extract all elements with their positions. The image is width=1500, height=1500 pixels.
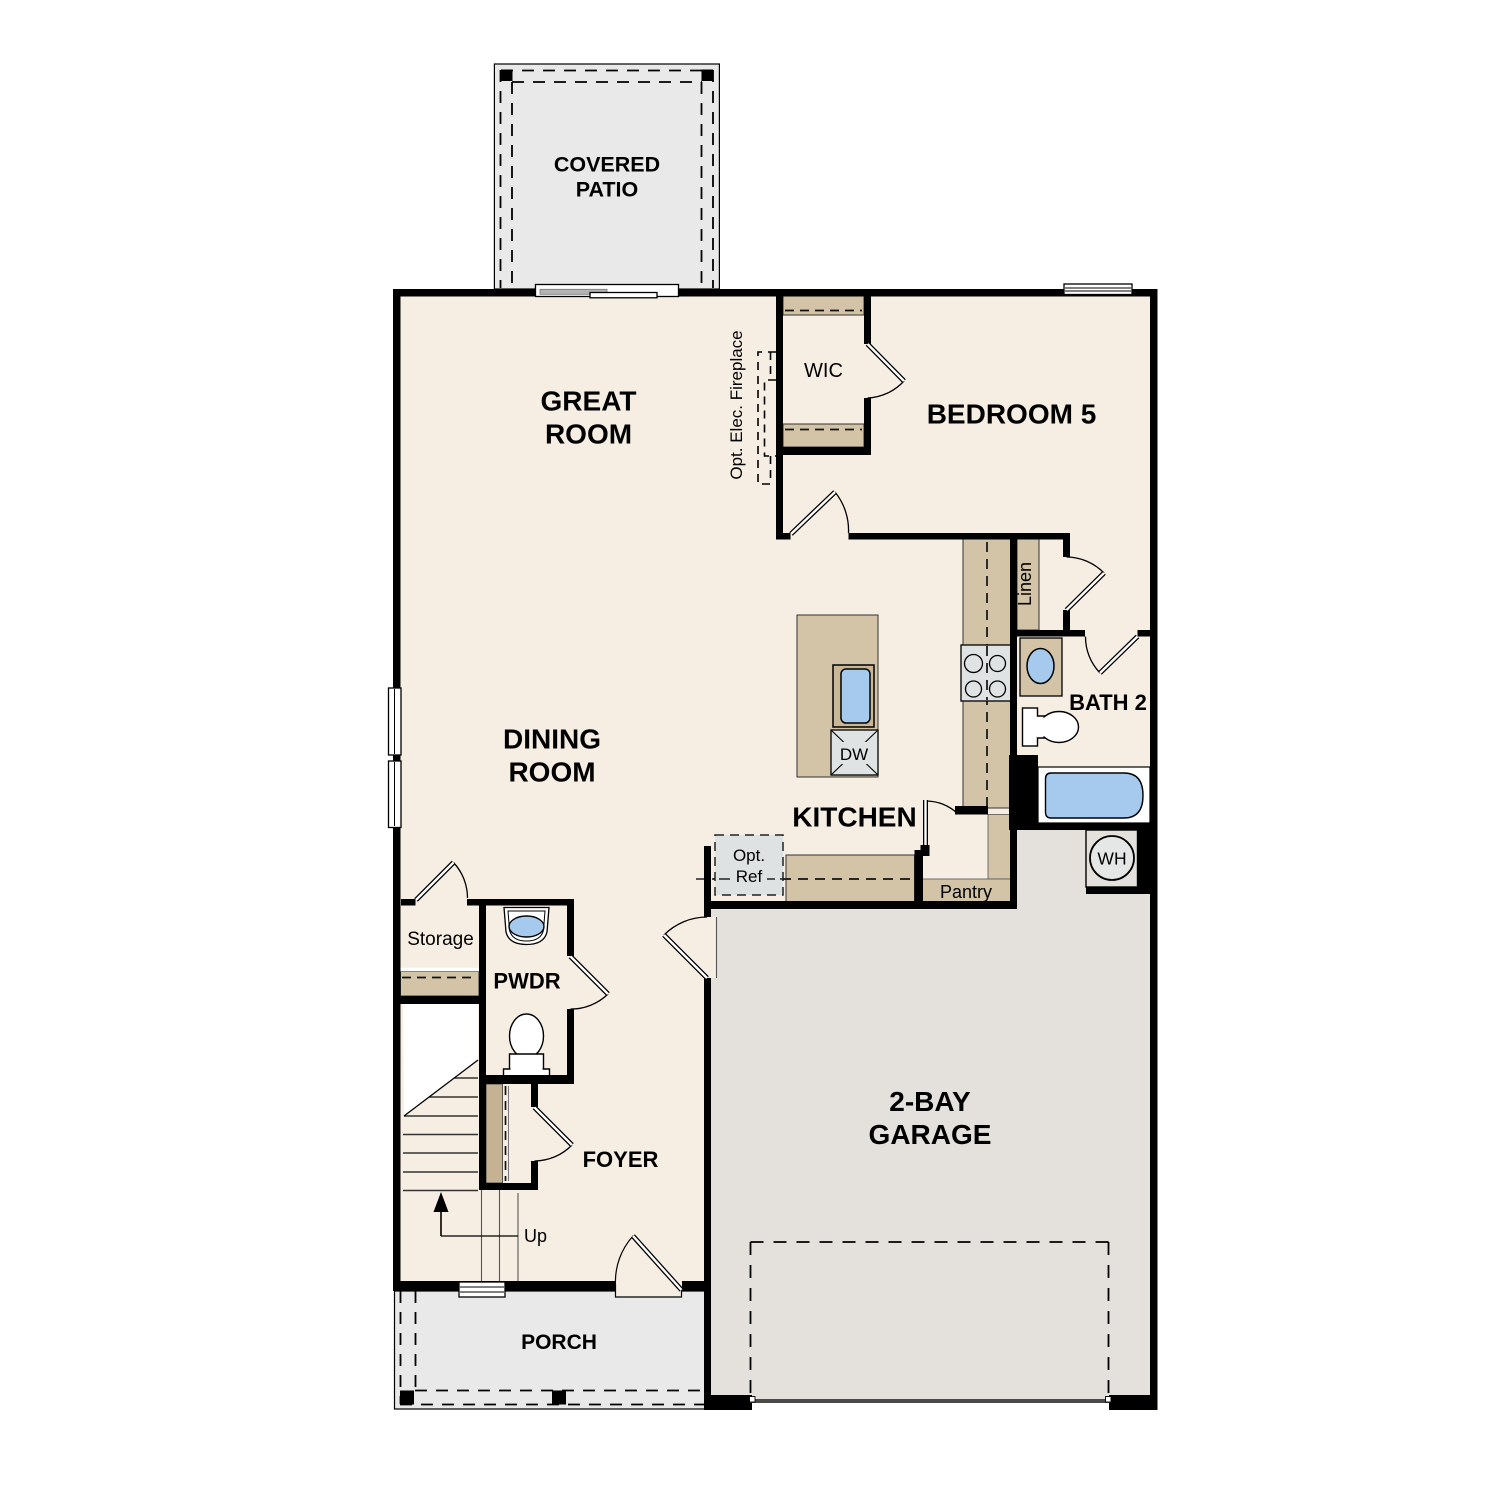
svg-text:Ref: Ref — [736, 867, 763, 886]
svg-text:GREAT: GREAT — [541, 386, 637, 417]
svg-text:WIC: WIC — [804, 360, 843, 382]
svg-text:BATH 2: BATH 2 — [1069, 690, 1147, 715]
svg-text:KITCHEN: KITCHEN — [792, 802, 916, 833]
svg-text:Pantry: Pantry — [940, 882, 992, 902]
svg-text:Up: Up — [524, 1226, 547, 1246]
svg-text:WH: WH — [1097, 849, 1126, 869]
svg-text:COVERED: COVERED — [554, 153, 660, 177]
svg-text:DW: DW — [840, 745, 868, 764]
svg-text:GARAGE: GARAGE — [869, 1119, 992, 1150]
svg-text:Storage: Storage — [407, 929, 474, 950]
svg-text:PWDR: PWDR — [493, 969, 560, 994]
svg-text:ROOM: ROOM — [545, 418, 632, 449]
svg-text:ROOM: ROOM — [508, 757, 595, 788]
svg-text:PORCH: PORCH — [521, 1331, 597, 1354]
svg-text:PATIO: PATIO — [576, 178, 639, 202]
svg-text:DINING: DINING — [503, 724, 601, 755]
svg-text:Opt.: Opt. — [733, 846, 765, 865]
svg-text:Opt. Elec. Fireplace: Opt. Elec. Fireplace — [727, 330, 746, 479]
svg-text:2-BAY: 2-BAY — [889, 1086, 971, 1117]
svg-text:FOYER: FOYER — [583, 1147, 659, 1172]
svg-text:Linen: Linen — [1015, 562, 1035, 606]
svg-text:BEDROOM 5: BEDROOM 5 — [927, 399, 1097, 430]
